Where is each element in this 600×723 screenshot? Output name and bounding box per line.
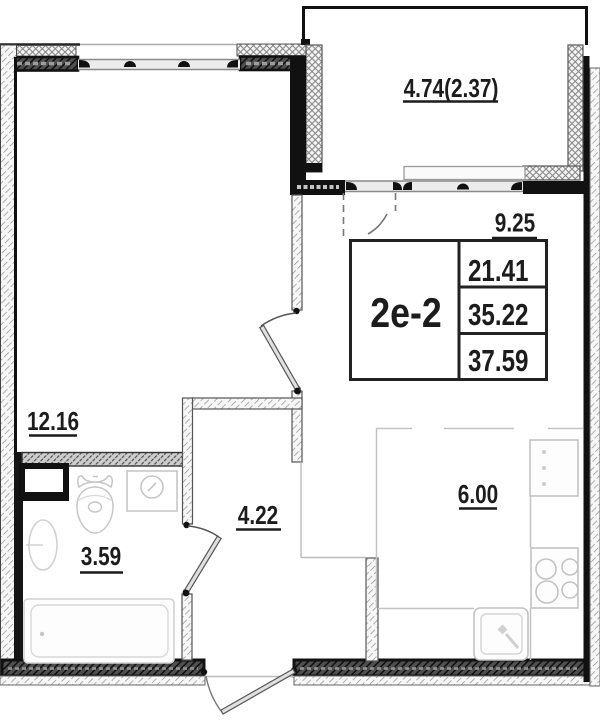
svg-text:6.00: 6.00: [458, 480, 498, 509]
svg-text:9.25: 9.25: [495, 208, 535, 237]
svg-text:21.41: 21.41: [468, 253, 528, 288]
svg-text:4.22: 4.22: [238, 501, 278, 530]
svg-text:12.16: 12.16: [27, 407, 79, 436]
svg-text:3.59: 3.59: [81, 542, 121, 571]
svg-text:2е-2: 2е-2: [370, 290, 441, 336]
svg-text:4.74(2.37): 4.74(2.37): [404, 74, 499, 103]
svg-text:35.22: 35.22: [468, 297, 528, 332]
svg-text:37.59: 37.59: [468, 343, 528, 378]
